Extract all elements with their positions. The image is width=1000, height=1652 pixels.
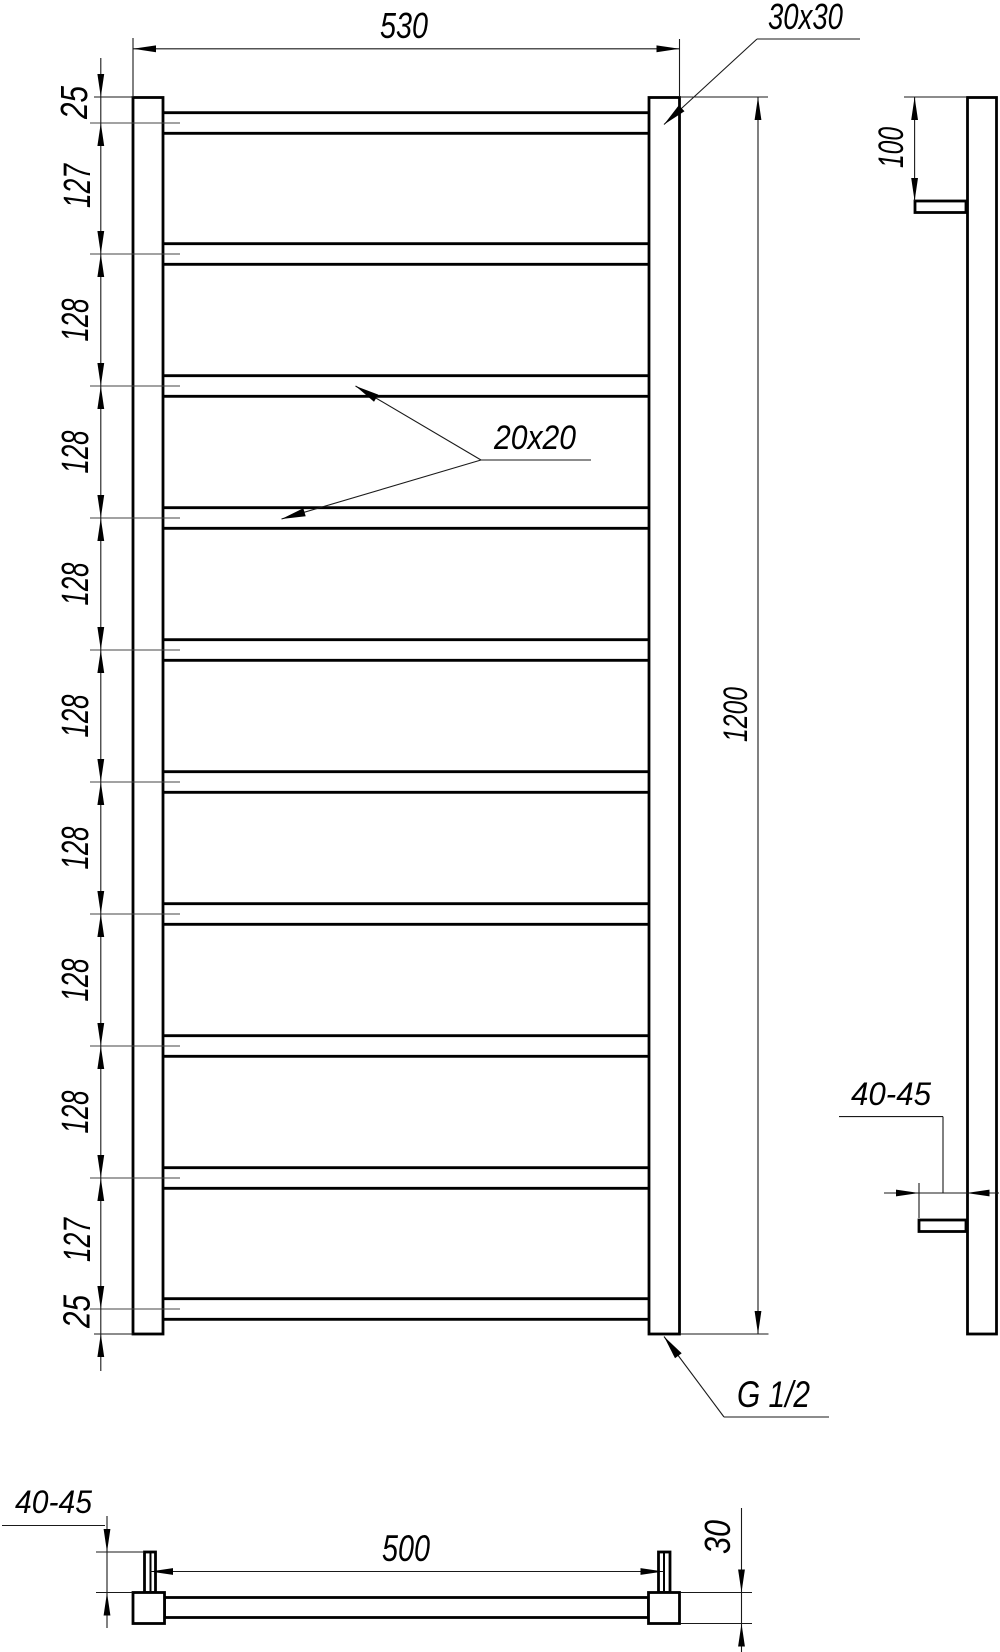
svg-text:25: 25 <box>57 1294 99 1328</box>
svg-text:128: 128 <box>55 431 97 474</box>
svg-text:127: 127 <box>57 163 99 208</box>
svg-text:128: 128 <box>55 563 97 606</box>
svg-text:100: 100 <box>872 127 911 168</box>
svg-text:25: 25 <box>54 85 96 119</box>
svg-text:G 1/2: G 1/2 <box>737 1374 810 1415</box>
svg-text:128: 128 <box>55 299 97 342</box>
svg-text:30: 30 <box>697 1520 738 1554</box>
svg-text:40-45: 40-45 <box>15 1484 92 1520</box>
svg-text:128: 128 <box>55 959 97 1002</box>
svg-text:500: 500 <box>382 1528 430 1569</box>
svg-text:128: 128 <box>55 827 97 870</box>
svg-text:127: 127 <box>57 1217 99 1262</box>
svg-text:128: 128 <box>55 1091 97 1134</box>
svg-text:530: 530 <box>380 5 428 46</box>
svg-text:1200: 1200 <box>717 687 755 742</box>
svg-text:128: 128 <box>55 695 97 738</box>
svg-text:20x20: 20x20 <box>493 419 576 457</box>
svg-text:40-45: 40-45 <box>851 1076 931 1112</box>
svg-text:30x30: 30x30 <box>768 0 843 37</box>
